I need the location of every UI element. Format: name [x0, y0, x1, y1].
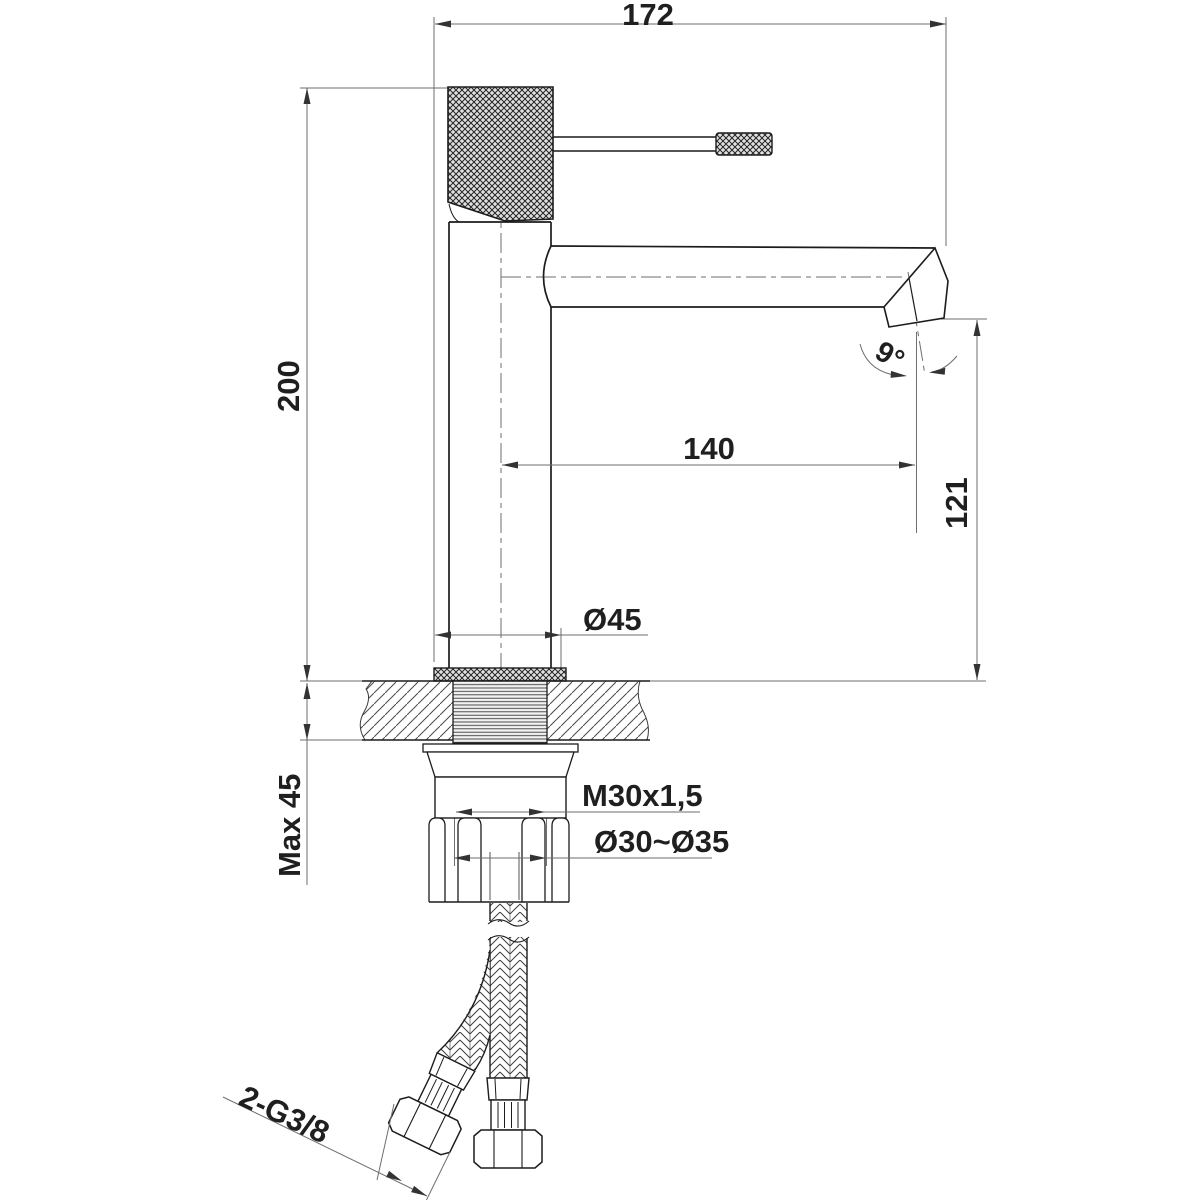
hex-nut	[474, 1130, 542, 1168]
dimension-total-height: 200	[271, 88, 311, 681]
dimension-outlet-height: 121	[939, 320, 981, 680]
mounting-nut-castellations	[429, 818, 569, 902]
handle-cap	[448, 87, 553, 222]
faucet-body-column	[449, 222, 551, 668]
supply-hose-vertical	[488, 903, 529, 1078]
drawing-canvas: 172 200 Max 45 140 121 Ø45	[0, 0, 1200, 1200]
dimension-spout-angle: 9°	[860, 335, 957, 378]
dimension-max-counter-thickness: Max 45	[272, 683, 311, 885]
washer	[423, 744, 578, 752]
dimension-base-diameter: Ø45	[435, 602, 648, 639]
dimension-total-width: 172	[435, 0, 946, 32]
hose-fitting-right	[474, 1078, 542, 1168]
dim-spout-reach-label: 140	[683, 431, 735, 466]
dimension-mounting-hole: Ø30~Ø35	[454, 824, 729, 862]
dim-thread-label: M30x1,5	[582, 778, 703, 813]
countertop-right	[547, 681, 648, 740]
crimp-collar	[487, 1078, 529, 1100]
faucet-technical-drawing: 172 200 Max 45 140 121 Ø45	[0, 0, 1200, 1200]
dim-base-diameter-label: Ø45	[583, 602, 642, 637]
shank-collar	[427, 752, 574, 777]
countertop-left	[360, 681, 453, 740]
hose-edges-in-slot	[490, 852, 519, 900]
dim-spout-angle-label: 9°	[870, 335, 910, 377]
centerlines	[501, 93, 925, 690]
mounting-hardware	[423, 744, 578, 902]
hose-connection-label: 2-G3/8	[234, 1079, 335, 1151]
dimension-spout-reach: 140	[502, 431, 915, 469]
dim-hole-range-label: Ø30~Ø35	[594, 824, 729, 859]
base-ring	[434, 668, 566, 681]
dim-total-height-label: 200	[271, 360, 306, 412]
handle-lever	[553, 133, 772, 155]
handle-lever-knurled-tip	[716, 133, 772, 155]
dim-max-thickness-label: Max 45	[272, 774, 307, 877]
spout	[551, 246, 948, 327]
dim-outlet-height-label: 121	[939, 477, 974, 529]
supply-hose-angled	[437, 940, 490, 1071]
dim-total-width-label: 172	[622, 0, 674, 32]
fitting-neck	[491, 1100, 525, 1130]
threaded-shank	[453, 681, 547, 743]
